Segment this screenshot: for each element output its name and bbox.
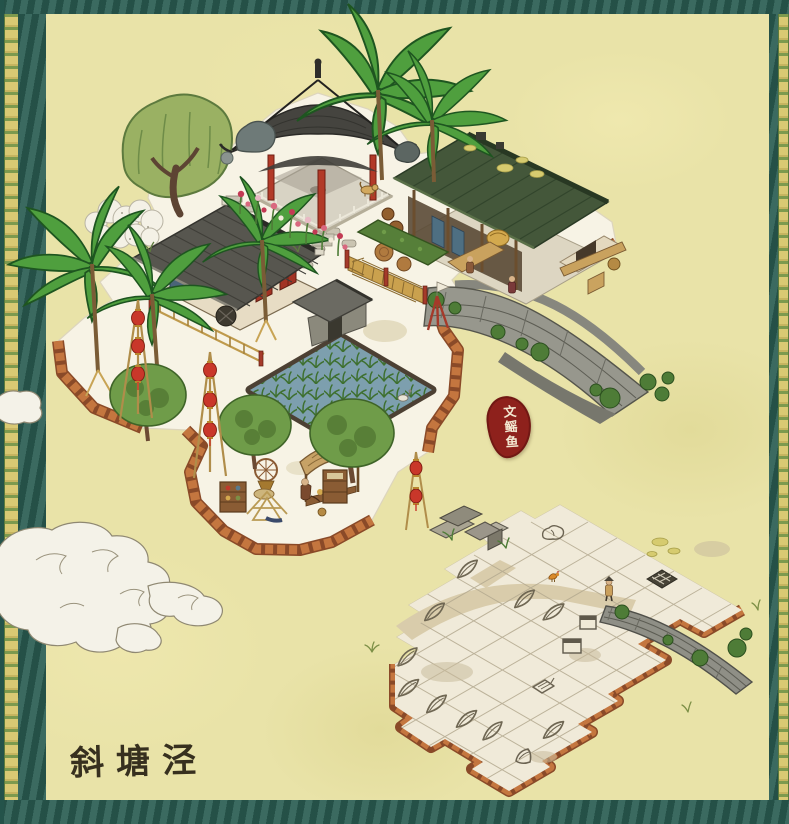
stone-ruins[interactable] <box>430 506 509 550</box>
building-plots-platform[interactable] <box>274 505 789 824</box>
seal-text: 文鳐鱼 <box>501 404 517 450</box>
game-map-viewport[interactable]: 文鳐鱼 斜塘泾 <box>0 0 789 824</box>
map-scene <box>0 0 789 824</box>
worker <box>509 276 516 293</box>
location-label: 斜塘泾 <box>69 732 208 785</box>
box-plot-icon[interactable] <box>563 639 581 653</box>
worker <box>467 256 474 273</box>
box-plot-icon[interactable] <box>580 616 596 629</box>
